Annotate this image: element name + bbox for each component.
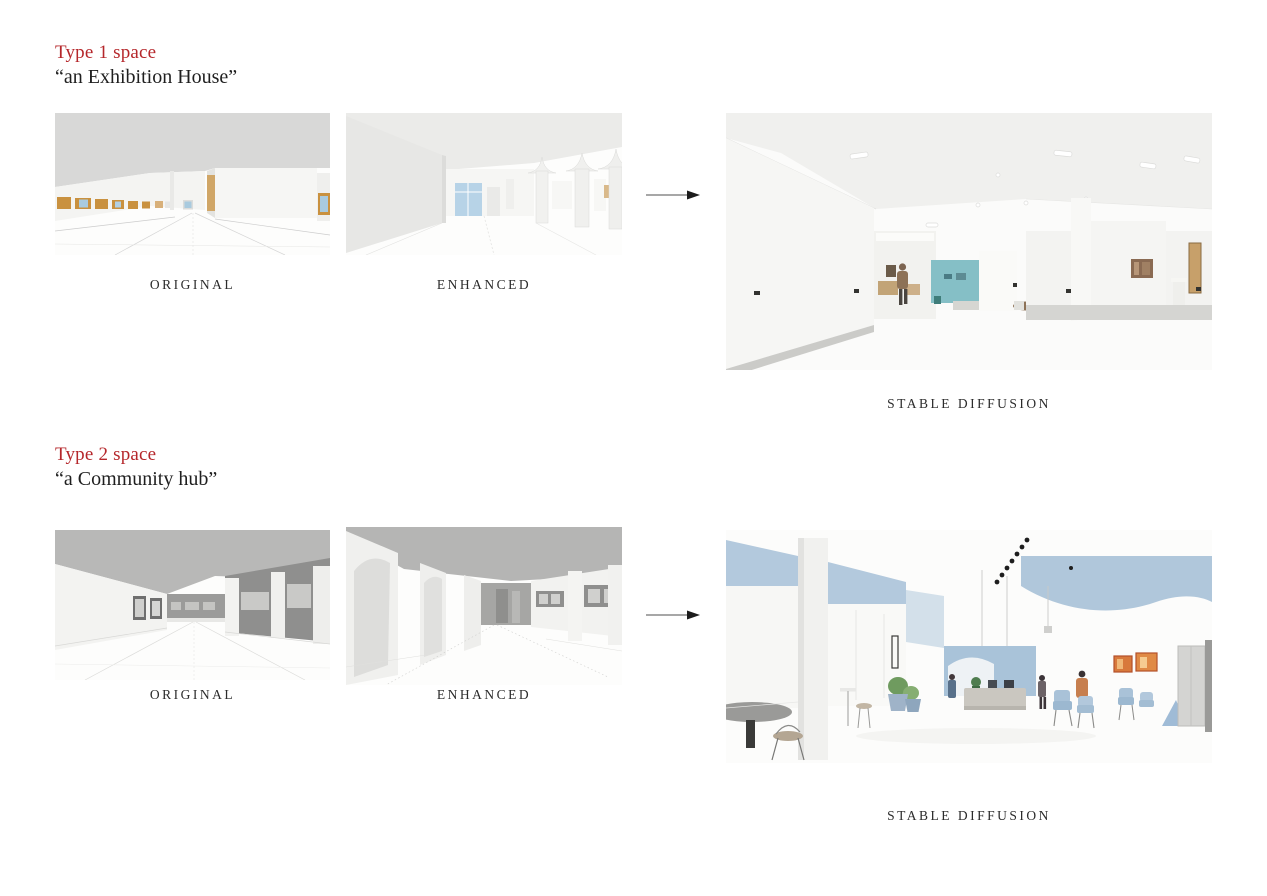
arrow-right-icon (645, 188, 701, 202)
type-2-enhanced-figure (346, 527, 622, 685)
blue-glass-box (455, 183, 482, 216)
type-1-original-label: ORIGINAL (55, 277, 330, 293)
type-2-enhanced-label: ENHANCED (346, 687, 622, 703)
type-1-original-figure (55, 113, 330, 255)
teal-accent-wall (931, 260, 979, 304)
type-1-enhanced-label: ENHANCED (346, 277, 622, 293)
type-1-original-render (55, 113, 330, 255)
type-2-original-render (55, 530, 330, 680)
type-2-result-figure (726, 530, 1212, 763)
type-2-stable-diffusion-render (726, 530, 1212, 763)
type-2-original-label: ORIGINAL (55, 687, 330, 703)
type-1-result-label: STABLE DIFFUSION (726, 396, 1212, 412)
type-1-result-figure (726, 113, 1212, 370)
type-2-title: Type 2 space (55, 444, 156, 466)
type-1-stable-diffusion-render (726, 113, 1212, 370)
type-1-enhanced-render (346, 113, 622, 255)
orange-framed-artworks (1114, 653, 1157, 672)
type-1-enhanced-figure (346, 113, 622, 255)
arrow-right-icon (645, 608, 701, 622)
type-2-subtitle: “a Community hub” (55, 468, 217, 491)
type-2-enhanced-render (346, 527, 622, 685)
presentation-slide: Type 1 space “an Exhibition House” (0, 0, 1267, 896)
type-1-title: Type 1 space (55, 42, 156, 64)
right-door (1178, 640, 1212, 732)
type-1-subtitle: “an Exhibition House” (55, 66, 237, 89)
type-2-original-figure (55, 530, 330, 680)
type-2-result-label: STABLE DIFFUSION (726, 808, 1212, 824)
